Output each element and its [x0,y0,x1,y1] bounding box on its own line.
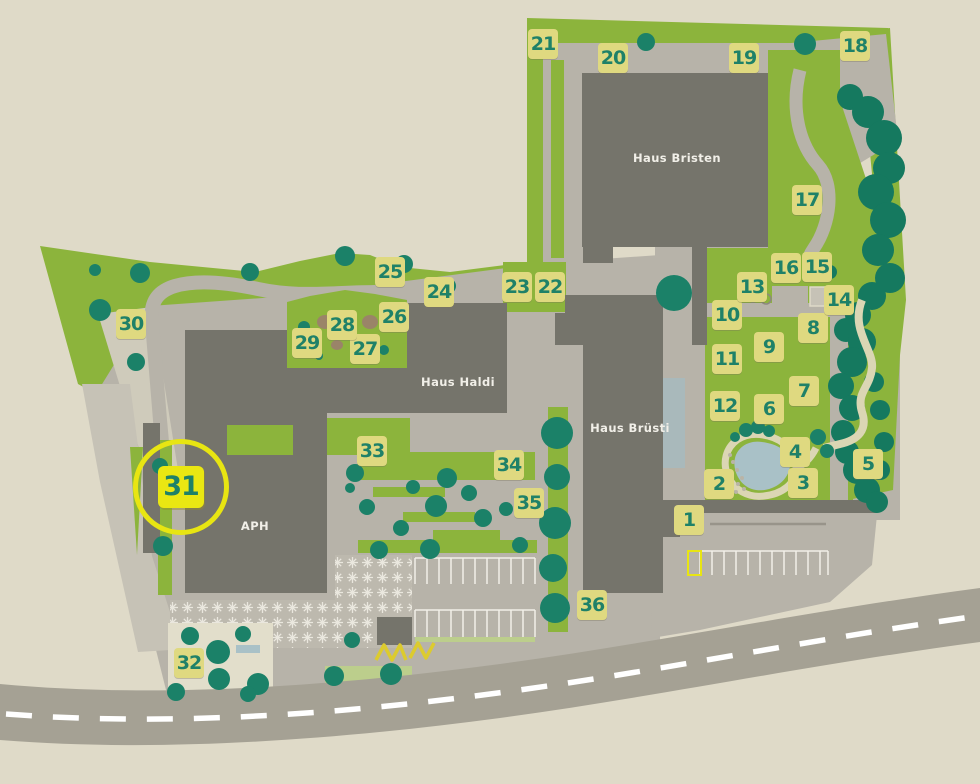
map-marker-18[interactable]: 18 [840,31,870,61]
map-marker-32[interactable]: 32 [174,648,204,678]
map-marker-17[interactable]: 17 [792,185,822,215]
map-marker-35[interactable]: 35 [514,488,544,518]
map-marker-29[interactable]: 29 [292,328,322,358]
aph-label: APH [241,519,269,533]
map-marker-31[interactable]: 31 [158,466,204,508]
map-marker-7[interactable]: 7 [789,376,819,406]
map-marker-10[interactable]: 10 [712,300,742,330]
map-marker-21[interactable]: 21 [528,29,558,59]
map-marker-28[interactable]: 28 [327,310,357,340]
site-map: 1234567891011121314151617181920212223242… [0,0,980,784]
map-marker-16[interactable]: 16 [771,253,801,283]
map-marker-25[interactable]: 25 [375,257,405,287]
map-marker-4[interactable]: 4 [780,437,810,467]
map-marker-26[interactable]: 26 [379,302,409,332]
map-marker-34[interactable]: 34 [494,450,524,480]
map-marker-30[interactable]: 30 [116,309,146,339]
marker-layer: 1234567891011121314151617181920212223242… [0,0,980,784]
map-marker-24[interactable]: 24 [424,277,454,307]
map-marker-23[interactable]: 23 [502,272,532,302]
map-marker-1[interactable]: 1 [674,505,704,535]
map-marker-3[interactable]: 3 [788,468,818,498]
map-marker-19[interactable]: 19 [729,43,759,73]
map-marker-33[interactable]: 33 [357,436,387,466]
map-marker-22[interactable]: 22 [535,272,565,302]
map-marker-14[interactable]: 14 [824,285,854,315]
map-marker-6[interactable]: 6 [754,394,784,424]
map-marker-2[interactable]: 2 [704,469,734,499]
map-marker-15[interactable]: 15 [802,252,832,282]
map-marker-11[interactable]: 11 [712,344,742,374]
haus-bruesti-label: Haus Brüsti [590,421,670,435]
map-marker-8[interactable]: 8 [798,313,828,343]
map-marker-36[interactable]: 36 [577,590,607,620]
map-marker-5[interactable]: 5 [853,449,883,479]
map-marker-12[interactable]: 12 [710,391,740,421]
map-marker-20[interactable]: 20 [598,43,628,73]
map-marker-13[interactable]: 13 [737,272,767,302]
haus-haldi-label: Haus Haldi [421,375,495,389]
haus-bristen-label: Haus Bristen [633,151,721,165]
map-marker-9[interactable]: 9 [754,332,784,362]
